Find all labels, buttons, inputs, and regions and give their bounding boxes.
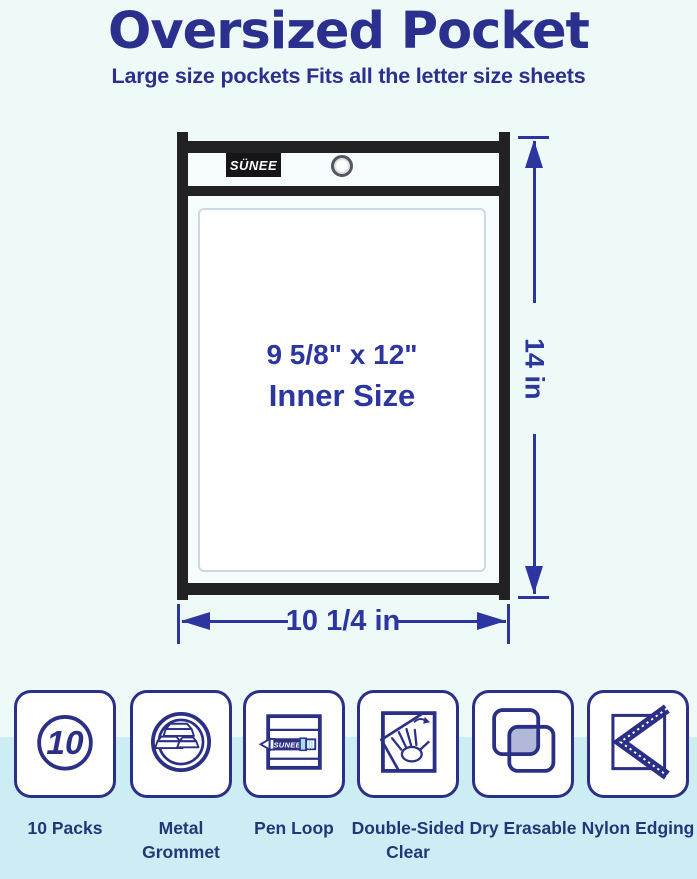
feature-label-line: Grommet [111,840,251,864]
feature-label-line: Clear [338,840,478,864]
pocket-edge-bottom [177,583,510,595]
product-image: Oversized Pocket Large size pockets Fits… [0,0,697,879]
feature-card-nylon-edging [587,690,689,798]
pocket-header-divider [183,186,505,196]
pack-count-icon: 10 [27,704,103,780]
feature-card-10-packs: 10 [14,690,116,798]
pocket-edge-left [177,132,188,600]
inner-size-value: 9 5/8" x 12" [266,334,417,375]
width-dimension-label: 10 1/4 in [283,605,403,638]
feature-card-pen-loop: SUNEE [243,690,345,798]
feature-card-dry-erasable [472,690,574,798]
arrow-left-icon [181,612,210,630]
grommet-icon [331,155,353,177]
page-title: Oversized Pocket [0,2,697,61]
height-dim-cap-top [518,136,549,139]
arrow-right-icon [477,612,506,630]
pen-brand-text: SUNEE [274,740,302,749]
page-subtitle: Large size pockets Fits all the letter s… [0,64,697,89]
brand-label: SÜNEE [226,153,281,177]
feature-card-double-sided-clear [357,690,459,798]
width-dim-cap-left [177,604,180,644]
metal-grommet-icon [143,704,219,780]
pack-count-badge: 10 [46,725,84,762]
feature-label-line: Nylon Edging [568,816,697,840]
height-dimension-label: 14 in [506,303,562,434]
feature-label-nylon-edging: Nylon Edging [568,816,697,840]
arrow-up-icon [525,140,543,168]
inner-sheet: 9 5/8" x 12" Inner Size [198,208,486,572]
inner-size-text: 9 5/8" x 12" Inner Size [266,334,417,416]
nylon-edging-icon [600,704,676,780]
width-dim-cap-right [507,604,510,644]
pen-loop-icon: SUNEE [256,704,332,780]
inner-size-caption: Inner Size [266,375,417,416]
double-sided-clear-icon [370,704,446,780]
pocket-edge-top [177,141,510,153]
dry-erasable-icon [485,704,561,780]
height-dim-cap-bottom [518,596,549,599]
feature-card-metal-grommet [130,690,232,798]
arrow-down-icon [525,566,543,594]
